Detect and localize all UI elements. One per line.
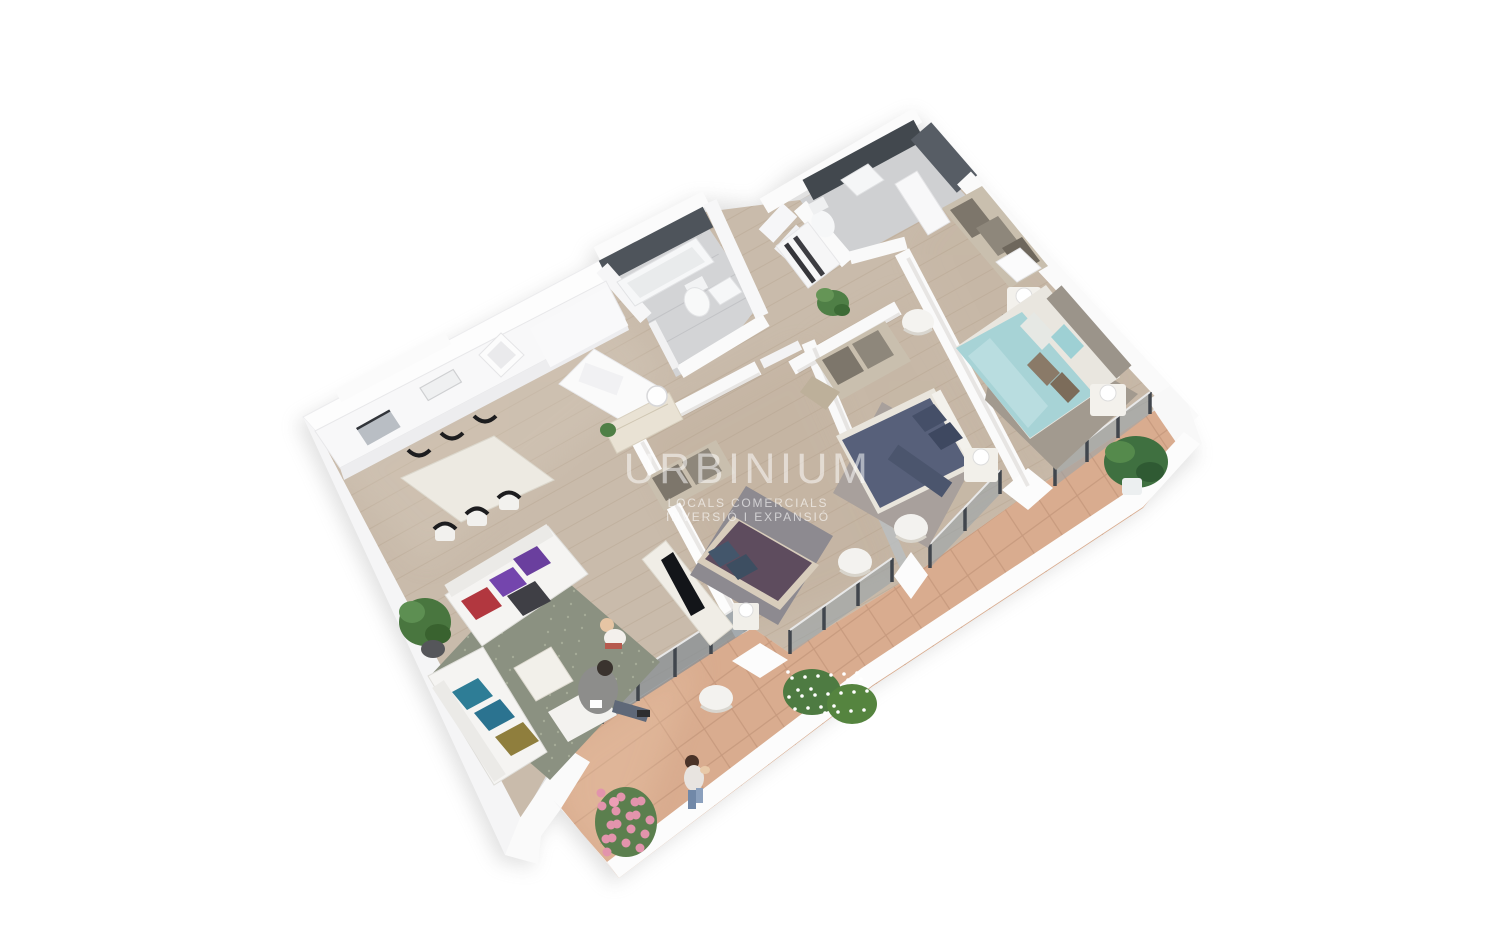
svg-text:LOCALS COMERCIALS: LOCALS COMERCIALS (668, 496, 829, 510)
svg-text:INVERSIÓ I EXPANSIÓ: INVERSIÓ I EXPANSIÓ (666, 509, 830, 524)
svg-text:URBINIUM: URBINIUM (624, 445, 873, 493)
